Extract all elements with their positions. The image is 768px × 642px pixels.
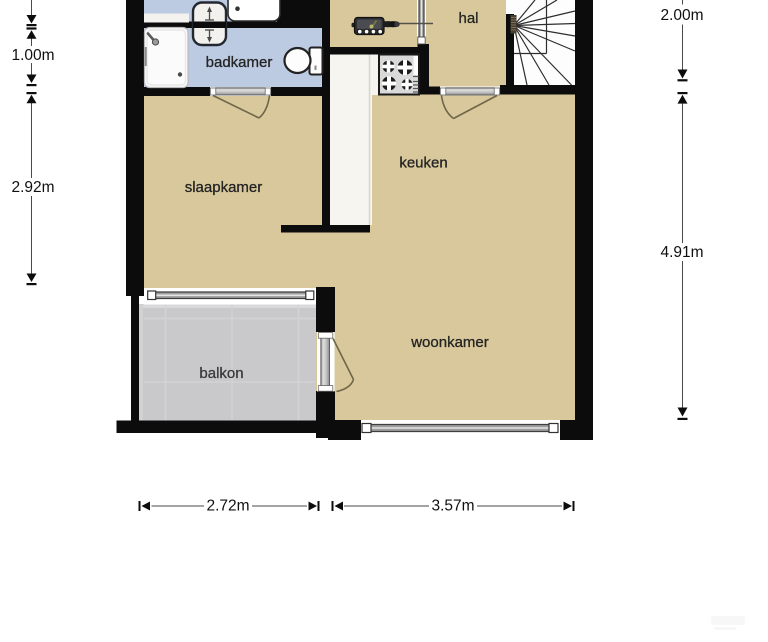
svg-text:2.72m: 2.72m (206, 498, 249, 515)
svg-text:slaapkamer: slaapkamer (185, 179, 263, 196)
svg-text:2.00m: 2.00m (660, 7, 703, 24)
svg-text:4.91m: 4.91m (660, 244, 703, 261)
svg-text:keuken: keuken (399, 155, 447, 172)
svg-text:balkon: balkon (199, 365, 243, 382)
svg-text:hal: hal (458, 10, 478, 27)
svg-text:1.00m: 1.00m (11, 47, 54, 64)
svg-text:3.57m: 3.57m (431, 498, 474, 515)
svg-text:woonkamer: woonkamer (410, 334, 489, 351)
svg-text:badkamer: badkamer (206, 54, 273, 71)
svg-text:2.92m: 2.92m (11, 179, 54, 196)
